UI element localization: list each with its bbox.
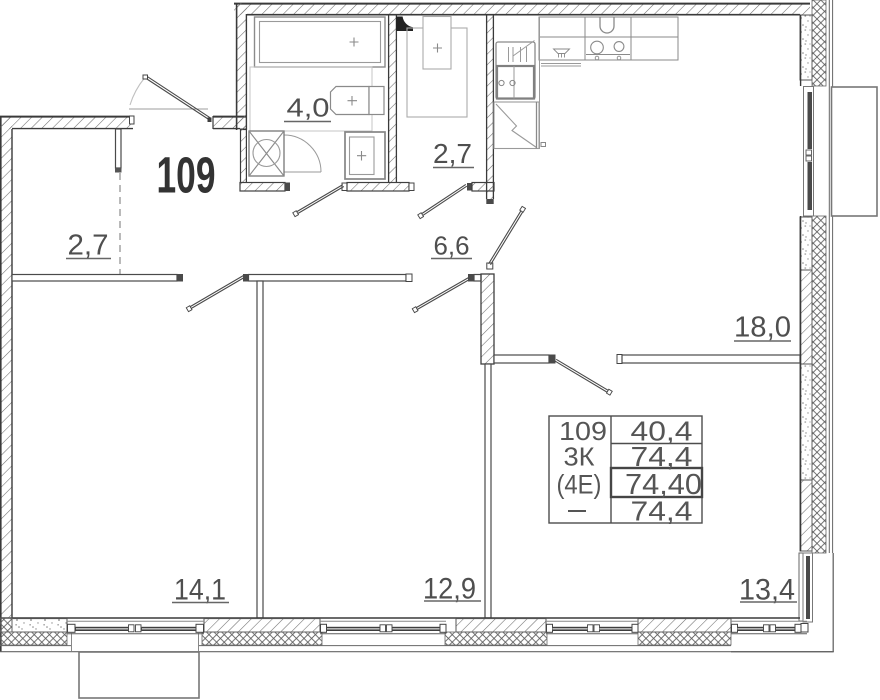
svg-text:4,0: 4,0 (287, 93, 330, 123)
svg-text:3К: 3К (564, 442, 595, 472)
svg-text:2,7: 2,7 (68, 230, 109, 262)
svg-text:14,1: 14,1 (174, 574, 226, 607)
svg-text:74,4: 74,4 (631, 441, 693, 472)
svg-text:2,7: 2,7 (433, 138, 472, 169)
svg-text:109: 109 (157, 147, 216, 204)
svg-text:(4Е): (4Е) (557, 470, 602, 500)
svg-text:6,6: 6,6 (434, 231, 470, 261)
svg-text:74,4: 74,4 (631, 496, 693, 527)
svg-text:18,0: 18,0 (734, 312, 791, 344)
